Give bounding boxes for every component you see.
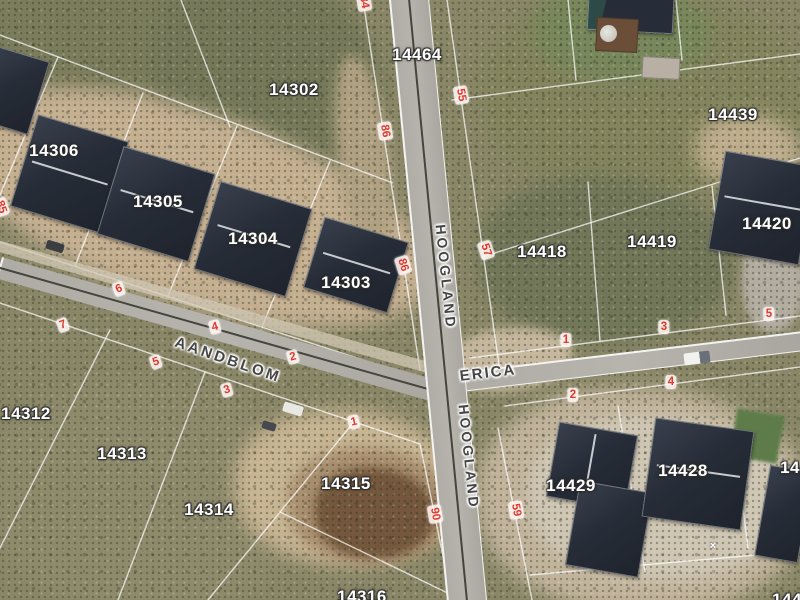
parcel-number-label: 14306 (29, 141, 79, 161)
stand-number-label: 4 (665, 375, 676, 389)
parcel-number-label: 14439 (708, 105, 758, 125)
parcel-number-label: 14304 (228, 229, 278, 249)
stand-number-label-partial: 84 (356, 0, 373, 12)
stand-number-label: 1 (347, 414, 361, 430)
parcel-number-label: 14418 (517, 242, 567, 262)
stand-number-label: 1 (560, 333, 571, 347)
street-name-label: AANDBLOM (173, 334, 284, 386)
parcel-number-label: 14420 (742, 214, 792, 234)
stand-number-label: 86 (377, 121, 394, 141)
parcel-number-label: 14314 (184, 500, 234, 520)
parcel-number-label-partial: 14316 (337, 587, 387, 600)
stand-number-label: 86 (394, 254, 413, 275)
stand-number-label: 57 (477, 239, 496, 260)
parcel-number-label: 14312 (1, 404, 51, 424)
parcel-number-label: 14428 (658, 461, 708, 481)
parcel-number-label-partial: 1442 (772, 590, 800, 600)
stand-number-label: 3 (658, 320, 669, 334)
parcel-number-label: 14305 (133, 192, 183, 212)
map-labels-layer: 1430214306143051430414303144641443914418… (0, 0, 800, 600)
parcel-number-label: 14315 (321, 474, 371, 494)
stand-number-label: 3 (220, 382, 235, 399)
stand-number-label: 7 (55, 316, 71, 333)
stand-number-label: 2 (286, 349, 301, 366)
stand-number-label-partial: 85 (0, 196, 10, 217)
stand-number-label: 55 (453, 85, 470, 105)
parcel-number-label: 14464 (392, 45, 442, 65)
parcel-number-label: 14302 (269, 80, 319, 100)
street-name-label: HOOGLAND (433, 224, 460, 331)
street-name-label: ERICA (459, 361, 517, 385)
aerial-map-canvas[interactable]: 1430214306143051430414303144641443914418… (0, 0, 800, 600)
stand-number-label: 4 (208, 319, 223, 336)
stand-number-label: 5 (763, 307, 774, 321)
parcel-number-label-partial: 1442 (780, 458, 800, 478)
parcel-number-label: 14419 (627, 232, 677, 252)
stand-number-label: 90 (427, 504, 444, 524)
stand-number-label: 2 (567, 388, 578, 402)
parcel-number-label: 14313 (97, 444, 147, 464)
stand-number-label: 6 (111, 280, 127, 297)
parcel-number-label: 14303 (321, 273, 371, 293)
stand-number-label: 59 (508, 500, 525, 520)
ground-mark-x: × (710, 540, 716, 552)
street-name-label: HOOGLAND (456, 404, 483, 511)
stand-number-label: 5 (148, 354, 163, 371)
parcel-number-label: 14429 (546, 476, 596, 496)
